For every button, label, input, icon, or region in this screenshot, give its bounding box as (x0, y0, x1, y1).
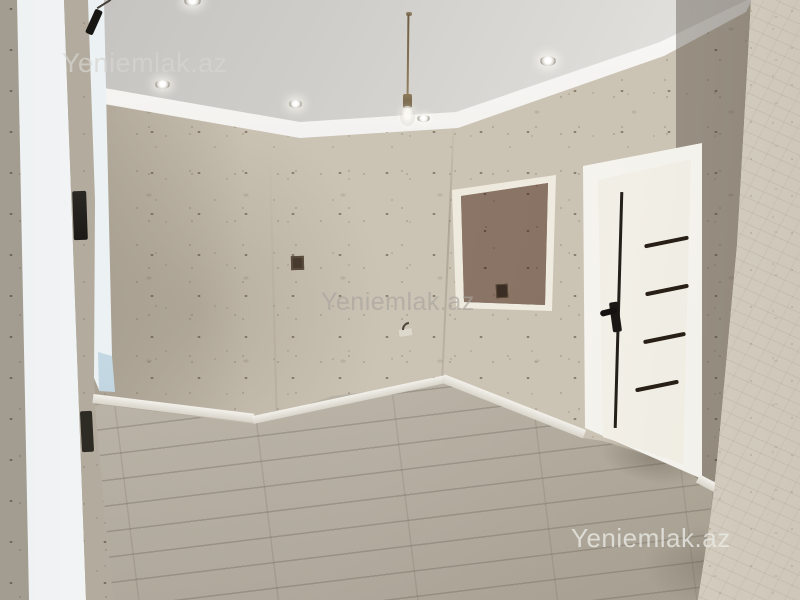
wall-socket-side (80, 411, 94, 453)
light-bulb-icon (400, 106, 415, 126)
spotlight-icon (289, 100, 302, 108)
watermark-bottom-right: Yeniemlak.az (571, 523, 731, 554)
wall-device (72, 191, 88, 240)
spotlight-icon (417, 115, 430, 122)
spotlight-icon (540, 56, 556, 66)
spotlight-icon (155, 80, 170, 89)
panel-outlet (496, 284, 509, 299)
watermark-center: Yeniemlak.az (321, 288, 475, 317)
watermark-top-left: Yeniemlak.az (62, 48, 228, 79)
light-switch (291, 256, 304, 270)
room-photo: Yeniemlak.az Yeniemlak.az Yeniemlak.az (0, 0, 800, 600)
